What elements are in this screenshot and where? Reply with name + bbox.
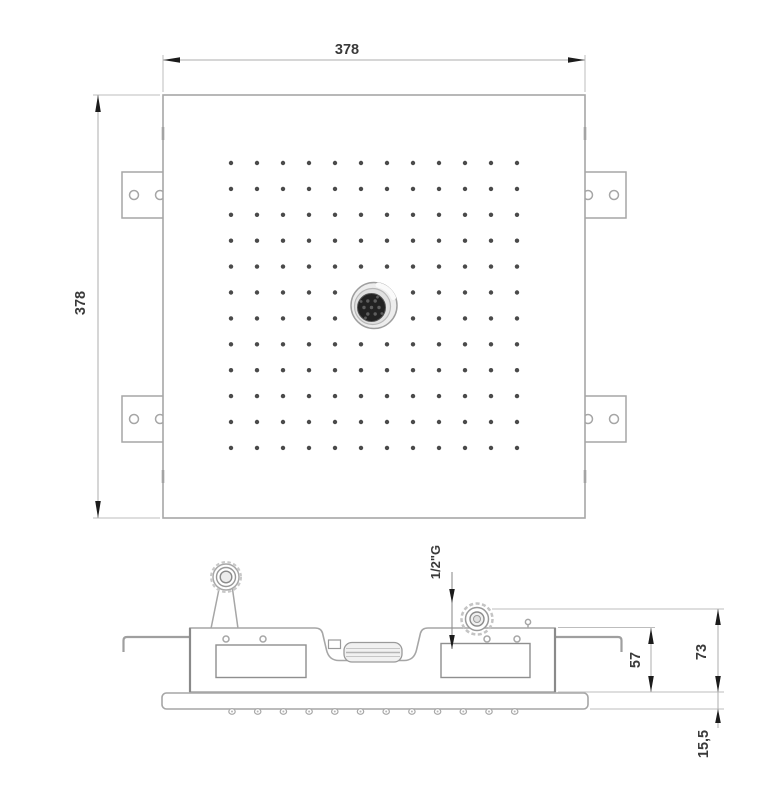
nozzle-dot xyxy=(255,446,259,450)
nozzle-dot xyxy=(463,213,467,217)
nozzle-dot xyxy=(281,187,285,191)
arrowhead xyxy=(95,95,101,112)
nozzle-dot xyxy=(359,161,363,165)
nozzle-dot xyxy=(281,394,285,398)
nozzle-dot xyxy=(411,394,415,398)
nozzle-dot xyxy=(489,394,493,398)
nozzle-dot xyxy=(515,316,519,320)
arrowhead xyxy=(648,676,654,692)
arrowhead xyxy=(715,676,721,692)
nozzle-dot xyxy=(437,213,441,217)
technical-drawing-page: 378 378 xyxy=(0,0,767,800)
mounting-bracket-bottom-left xyxy=(122,396,166,442)
dim-height-label: 378 xyxy=(73,291,89,315)
arrowhead xyxy=(568,57,585,63)
thread-label: 1/2"G xyxy=(428,545,443,579)
nozzle-dot xyxy=(437,239,441,243)
nozzle-dot xyxy=(229,316,233,320)
nozzle-dot xyxy=(411,264,415,268)
bracket-hole xyxy=(130,191,139,200)
nozzle-dot xyxy=(489,239,493,243)
plate-nozzle-hole xyxy=(437,711,439,713)
nozzle-dot xyxy=(281,368,285,372)
arrowhead xyxy=(163,57,180,63)
nozzle-dot xyxy=(437,316,441,320)
nozzle-dot xyxy=(489,290,493,294)
nozzle-dot xyxy=(281,420,285,424)
plate-nozzle-hole xyxy=(231,711,233,713)
nozzle-dot xyxy=(489,342,493,346)
nozzle-dot xyxy=(359,394,363,398)
nozzle-dot xyxy=(385,213,389,217)
nozzle-dot xyxy=(229,420,233,424)
swivel-arm xyxy=(211,562,241,629)
nozzle-dot xyxy=(515,187,519,191)
nozzle-dot xyxy=(515,446,519,450)
nozzle-dot xyxy=(437,187,441,191)
nozzle-dot xyxy=(489,187,493,191)
nozzle-dot xyxy=(229,290,233,294)
nozzle-dot xyxy=(385,161,389,165)
nozzle-dot xyxy=(385,342,389,346)
nozzle-dot xyxy=(333,316,337,320)
nozzle-dot xyxy=(307,264,311,268)
nozzle-dot xyxy=(307,187,311,191)
nozzle-dot xyxy=(229,368,233,372)
bracket-hole xyxy=(610,415,619,424)
mounting-bracket-bottom-right xyxy=(582,396,626,442)
nozzle-dot xyxy=(229,264,233,268)
nozzle-dot xyxy=(307,213,311,217)
nozzle-dot xyxy=(307,394,311,398)
nozzle-dot xyxy=(333,213,337,217)
nozzle-dot xyxy=(437,161,441,165)
nozzle-dot xyxy=(437,290,441,294)
nozzle-dot xyxy=(385,446,389,450)
nozzle-dot xyxy=(255,420,259,424)
arrowhead xyxy=(715,609,721,625)
nozzle-dot xyxy=(515,368,519,372)
nozzle-dot xyxy=(489,316,493,320)
nozzle-dot xyxy=(333,368,337,372)
plate-nozzle-hole xyxy=(411,711,413,713)
nozzle-dot xyxy=(463,368,467,372)
nozzle-dot xyxy=(255,342,259,346)
nozzle-dot xyxy=(515,420,519,424)
nozzle-dot xyxy=(281,213,285,217)
nozzle-dot xyxy=(359,342,363,346)
arrowhead xyxy=(715,709,721,723)
nozzle-dot xyxy=(437,420,441,424)
nozzle-dot xyxy=(411,290,415,294)
nozzle-dot xyxy=(385,394,389,398)
nozzle-dot xyxy=(411,239,415,243)
nozzle-dot xyxy=(489,264,493,268)
plate-nozzle-hole xyxy=(462,711,464,713)
nozzle-dot xyxy=(385,187,389,191)
nozzle-dot xyxy=(333,239,337,243)
bracket-hole xyxy=(130,415,139,424)
dim-width-label: 378 xyxy=(335,42,359,58)
nozzle-dot xyxy=(333,290,337,294)
plate-nozzle-hole xyxy=(360,711,362,713)
nozzle-dot xyxy=(385,420,389,424)
nozzle-dot xyxy=(229,394,233,398)
nozzle-dot xyxy=(359,420,363,424)
nozzle-dot xyxy=(437,342,441,346)
nozzle-dot xyxy=(255,213,259,217)
nozzle-dot xyxy=(281,446,285,450)
nozzle-dot xyxy=(307,239,311,243)
nozzle-dot xyxy=(463,394,467,398)
plate-nozzle-hole xyxy=(282,711,284,713)
top-view: 378 378 xyxy=(73,42,626,518)
nozzle-dot xyxy=(515,290,519,294)
dimension-height: 378 xyxy=(73,95,160,518)
mounting-bracket-top-left xyxy=(122,172,166,218)
dim-15-5-label: 15,5 xyxy=(696,730,712,758)
nozzle-dot xyxy=(463,161,467,165)
left-tab xyxy=(124,637,191,652)
nozzle-dot xyxy=(359,187,363,191)
nozzle-dot xyxy=(307,161,311,165)
nozzle-dot xyxy=(229,239,233,243)
nozzle-dot xyxy=(411,368,415,372)
nozzle-dot xyxy=(385,264,389,268)
nozzle-dot xyxy=(307,446,311,450)
nozzle-dot xyxy=(229,342,233,346)
plate-nozzle-hole xyxy=(334,711,336,713)
nozzle-dot xyxy=(515,342,519,346)
nozzle-dot xyxy=(307,342,311,346)
nozzle-dot xyxy=(333,394,337,398)
nozzle-dot xyxy=(281,290,285,294)
nozzle-dot xyxy=(411,213,415,217)
right-tab xyxy=(555,637,622,652)
nozzle-dot xyxy=(463,264,467,268)
plate-nozzle-hole xyxy=(385,711,387,713)
nozzle-dot xyxy=(255,290,259,294)
nozzle-dot xyxy=(333,187,337,191)
nozzle-dot xyxy=(359,368,363,372)
nozzle-dot xyxy=(359,446,363,450)
nozzle-dot xyxy=(515,394,519,398)
arrowhead xyxy=(95,501,101,518)
nozzle-dot xyxy=(489,446,493,450)
arrowhead xyxy=(449,589,455,603)
dimension-plate-height: 15,5 xyxy=(590,692,724,758)
nozzle-dot xyxy=(489,368,493,372)
nozzle-dot xyxy=(333,161,337,165)
nozzle-dot xyxy=(333,446,337,450)
plate-nozzle-hole xyxy=(257,711,259,713)
nozzle-dot xyxy=(385,239,389,243)
dim-73-label: 73 xyxy=(694,644,710,660)
nozzle-dot xyxy=(333,264,337,268)
side-view: 1/2"G 57 73 15,5 xyxy=(124,545,725,758)
nozzle-dot xyxy=(515,213,519,217)
nozzle-dot xyxy=(255,161,259,165)
nozzle-dot xyxy=(333,420,337,424)
nozzle-dot xyxy=(463,290,467,294)
plate-nozzle-hole xyxy=(308,711,310,713)
nozzle-dot xyxy=(489,420,493,424)
nozzle-dot xyxy=(437,368,441,372)
nozzle-dot xyxy=(255,239,259,243)
nozzle-dot xyxy=(307,316,311,320)
nozzle-dot xyxy=(411,187,415,191)
nozzle-dot xyxy=(411,420,415,424)
nozzle-dot xyxy=(229,213,233,217)
nozzle-dot xyxy=(255,264,259,268)
nozzle-dot xyxy=(437,446,441,450)
nozzle-dot xyxy=(489,213,493,217)
nozzle-dot xyxy=(437,264,441,268)
nozzle-dot xyxy=(281,161,285,165)
face-plate xyxy=(162,693,588,709)
edge-tick xyxy=(162,470,165,483)
nozzle-dot xyxy=(463,187,467,191)
nozzle-dot xyxy=(255,394,259,398)
nozzle-dot xyxy=(229,187,233,191)
bracket-hole xyxy=(610,191,619,200)
mounting-bracket-top-right xyxy=(582,172,626,218)
nozzle-dot xyxy=(411,446,415,450)
nozzle-dot xyxy=(307,420,311,424)
edge-tick xyxy=(584,127,587,140)
small-pin xyxy=(525,619,530,628)
nozzle-dot xyxy=(255,368,259,372)
nozzle-dot xyxy=(411,161,415,165)
arrowhead xyxy=(648,628,654,644)
nozzle-dot xyxy=(463,420,467,424)
edge-tick xyxy=(584,470,587,483)
nozzle-dot xyxy=(515,161,519,165)
nozzle-dot xyxy=(411,342,415,346)
nozzle-dot xyxy=(359,264,363,268)
nozzle-dot xyxy=(229,446,233,450)
edge-tick xyxy=(162,127,165,140)
nozzle-dot xyxy=(307,368,311,372)
plate-nozzle-hole xyxy=(488,711,490,713)
nozzle-dot xyxy=(281,239,285,243)
nozzle-dot xyxy=(463,316,467,320)
nozzle-dot xyxy=(489,161,493,165)
nozzle-dot xyxy=(515,239,519,243)
nozzle-dot xyxy=(463,342,467,346)
nozzle-dot xyxy=(281,316,285,320)
nozzle-dot xyxy=(385,368,389,372)
nozzle-dot xyxy=(255,316,259,320)
nozzle-dot xyxy=(437,394,441,398)
nozzle-dot xyxy=(359,213,363,217)
plate-nozzle-hole xyxy=(514,711,516,713)
nozzle-dot xyxy=(281,264,285,268)
dim-57-label: 57 xyxy=(628,652,644,668)
technical-drawing: 378 378 xyxy=(0,0,767,800)
dimension-width: 378 xyxy=(163,42,585,92)
nozzle-dot xyxy=(515,264,519,268)
nozzle-dot xyxy=(359,239,363,243)
nozzle-dot xyxy=(333,342,337,346)
nozzle-dot xyxy=(229,161,233,165)
central-sprayer xyxy=(351,283,397,329)
nozzle-dot xyxy=(463,446,467,450)
central-cartridge xyxy=(329,640,403,662)
nozzle-dot xyxy=(463,239,467,243)
nozzle-dot xyxy=(255,187,259,191)
nozzle-dot xyxy=(307,290,311,294)
nozzle-dot xyxy=(281,342,285,346)
nozzle-dot xyxy=(411,316,415,320)
